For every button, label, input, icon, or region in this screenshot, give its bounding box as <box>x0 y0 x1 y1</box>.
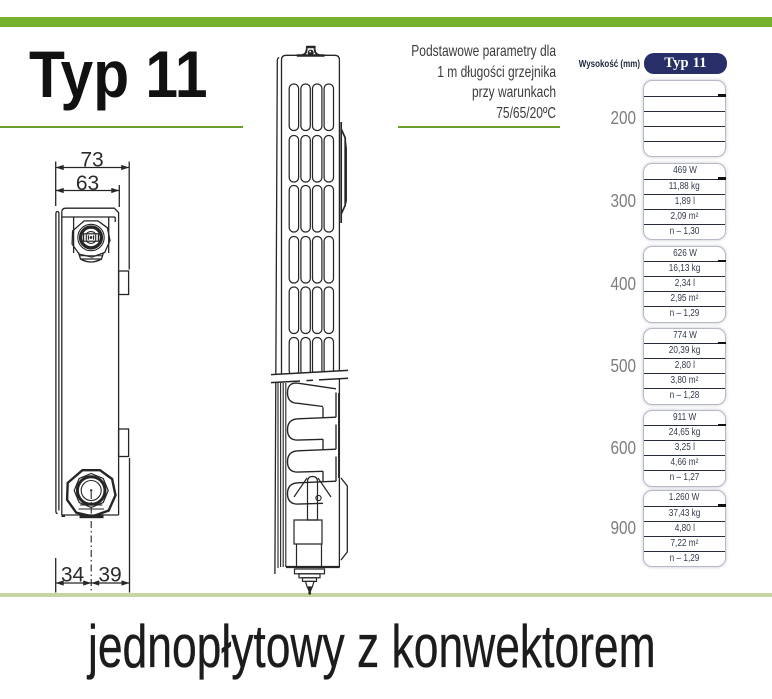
svg-text:63: 63 <box>76 172 99 195</box>
svg-text:39: 39 <box>98 564 121 587</box>
svg-text:73: 73 <box>80 149 103 172</box>
svg-text:34: 34 <box>61 564 85 587</box>
